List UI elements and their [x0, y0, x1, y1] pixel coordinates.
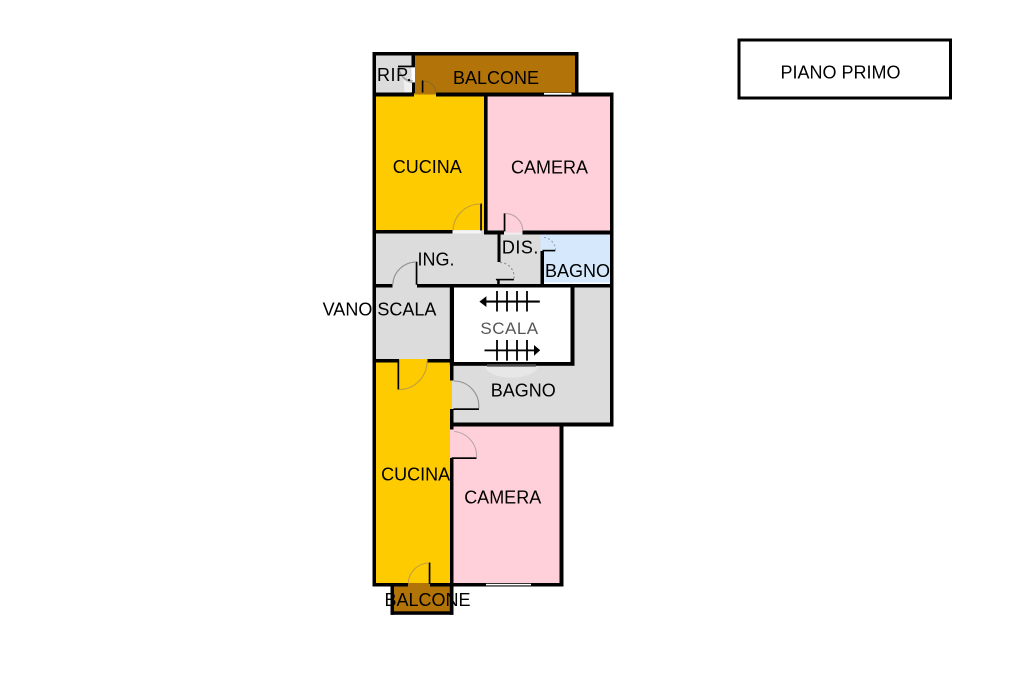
svg-text:CAMERA: CAMERA	[511, 158, 588, 178]
svg-text:BAGNO: BAGNO	[491, 381, 556, 401]
svg-text:CUCINA: CUCINA	[381, 465, 450, 485]
svg-text:DIS.: DIS.	[502, 238, 539, 258]
svg-text:VANO SCALA: VANO SCALA	[323, 300, 437, 320]
svg-text:SCALA: SCALA	[480, 319, 538, 338]
svg-text:RIP.: RIP.	[377, 65, 412, 85]
svg-text:BALCONE: BALCONE	[384, 590, 470, 610]
svg-text:BAGNO: BAGNO	[545, 261, 610, 281]
svg-text:CAMERA: CAMERA	[464, 488, 541, 508]
svg-text:PIANO PRIMO: PIANO PRIMO	[780, 63, 900, 83]
svg-text:CUCINA: CUCINA	[393, 157, 462, 177]
svg-text:ING.: ING.	[417, 250, 454, 270]
svg-text:BALCONE: BALCONE	[453, 68, 539, 88]
